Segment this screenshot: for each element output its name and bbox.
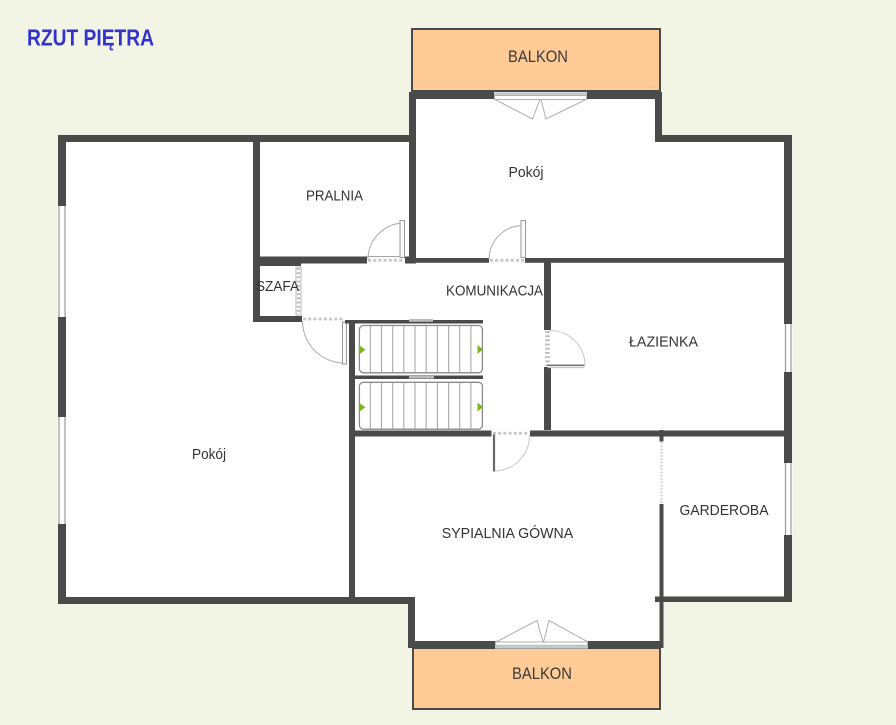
svg-text:SZAFA: SZAFA xyxy=(256,278,300,295)
svg-text:BALKON: BALKON xyxy=(508,47,568,66)
svg-text:KOMUNIKACJA: KOMUNIKACJA xyxy=(446,283,544,300)
svg-text:GARDEROBA: GARDEROBA xyxy=(680,502,770,519)
svg-text:RZUT PIĘTRA: RZUT PIĘTRA xyxy=(27,25,154,51)
svg-text:ŁAZIENKA: ŁAZIENKA xyxy=(629,334,699,351)
svg-text:Pokój: Pokój xyxy=(509,164,544,181)
svg-text:PRALNIA: PRALNIA xyxy=(306,188,364,205)
svg-text:Pokój: Pokój xyxy=(192,446,226,463)
svg-text:BALKON: BALKON xyxy=(512,664,572,683)
svg-text:SYPIALNIA GÓWNA: SYPIALNIA GÓWNA xyxy=(442,525,574,542)
